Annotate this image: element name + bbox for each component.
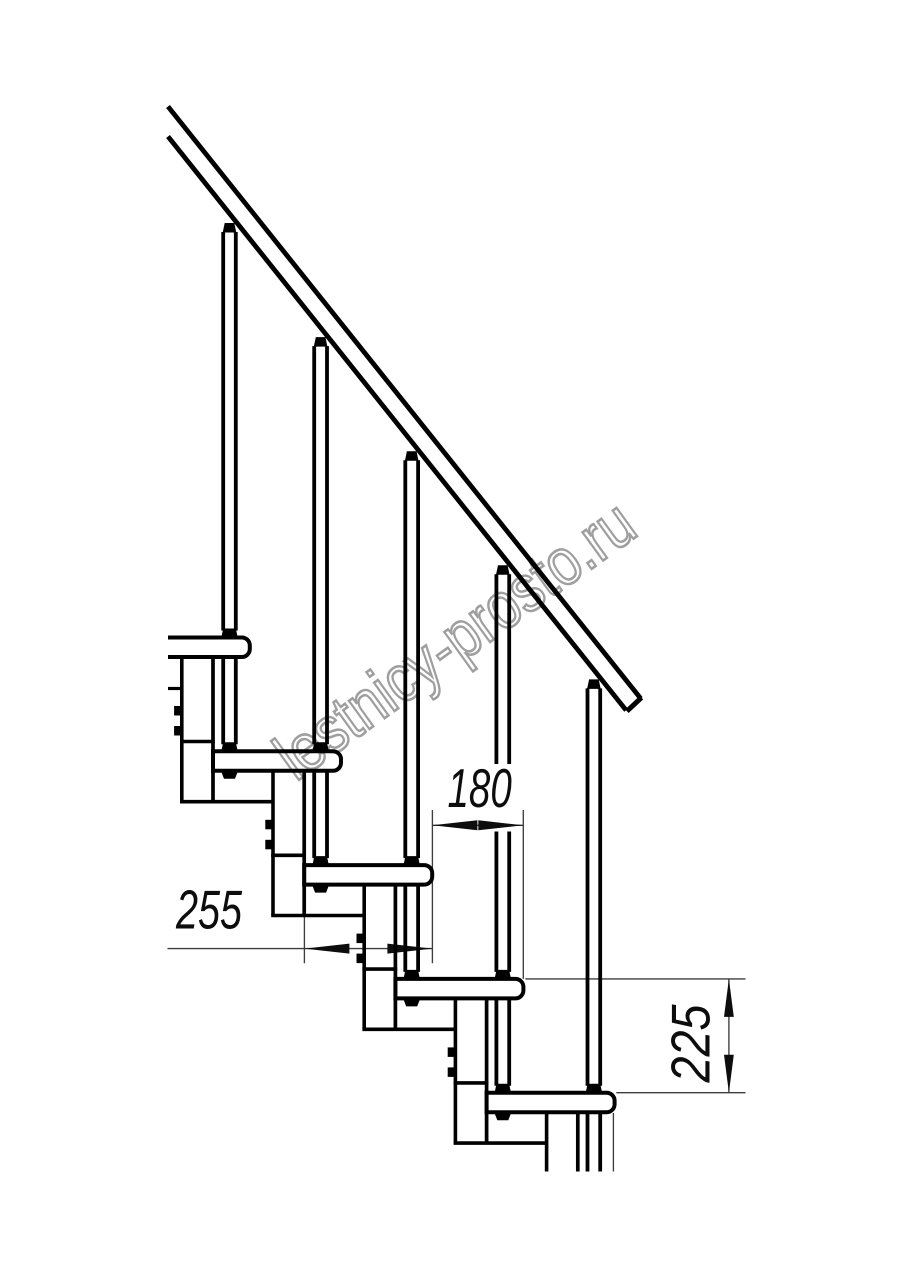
svg-text:180: 180 <box>448 758 512 819</box>
svg-text:255: 255 <box>175 880 242 941</box>
svg-text:225: 225 <box>660 1004 721 1083</box>
